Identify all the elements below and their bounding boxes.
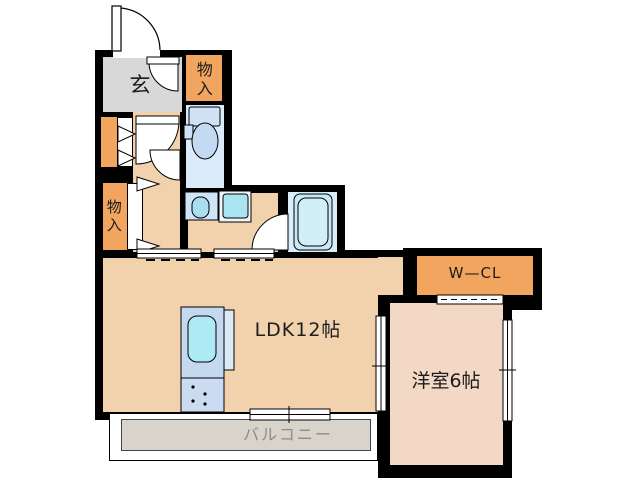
storage-left-label: 物入 [105,188,121,246]
sliding-door-ldk-western-room [372,316,390,411]
floor-plan: 玄 物入 物入 W—CL LDK12帖 洋室6帖 バルコニー [0,0,638,480]
sliding-door-washroom-ldk [214,249,274,261]
washing-machine-icon [219,191,251,222]
fixtures-overlay [0,0,638,480]
genkan-label: 玄 [120,74,160,96]
western-room-label: 洋室6帖 [385,372,507,392]
ldk-label: LDK12帖 [237,321,359,341]
toilet-fixture-icon [184,107,220,159]
bathroom-door [252,214,288,250]
toilet-door [150,150,180,180]
bathtub-icon [294,194,332,250]
kitchen-unit-icon [181,307,234,412]
window-western-room [499,320,516,421]
washbasin-icon [185,192,218,220]
opening-wcl-western-room [437,295,503,304]
walk-in-closet-label: W—CL [420,266,530,282]
entrance-door [112,6,160,58]
balcony-label: バルコニー [238,427,338,444]
window-ldk-balcony [250,406,330,423]
sliding-door-hall-ldk [137,249,201,261]
storage-top-label: 物入 [194,60,211,100]
